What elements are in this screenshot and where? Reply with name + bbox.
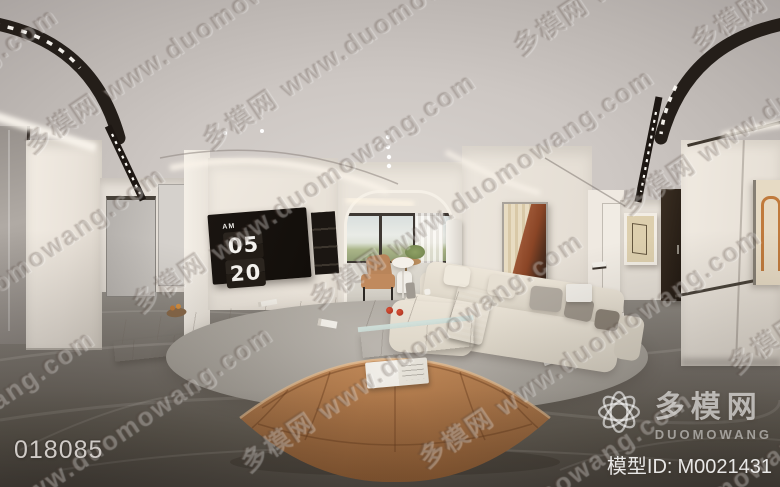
image-id: 018085	[14, 436, 103, 465]
model-id-value: M0021431	[677, 456, 772, 478]
brand-name-cn: 多模网	[655, 382, 772, 426]
panorama-scene: AM 0520	[0, 0, 780, 487]
brand-name-en: DUOMOWANG	[655, 427, 772, 442]
duomowang-logo-icon	[593, 386, 645, 438]
newspaper-on-ottoman	[365, 357, 429, 388]
model-id-line: 模型ID:M0021431	[593, 450, 772, 479]
model-id-label: 模型ID:	[607, 456, 673, 478]
brand-block: 多模网 DUOMOWANG 模型ID:M0021431	[593, 382, 772, 479]
